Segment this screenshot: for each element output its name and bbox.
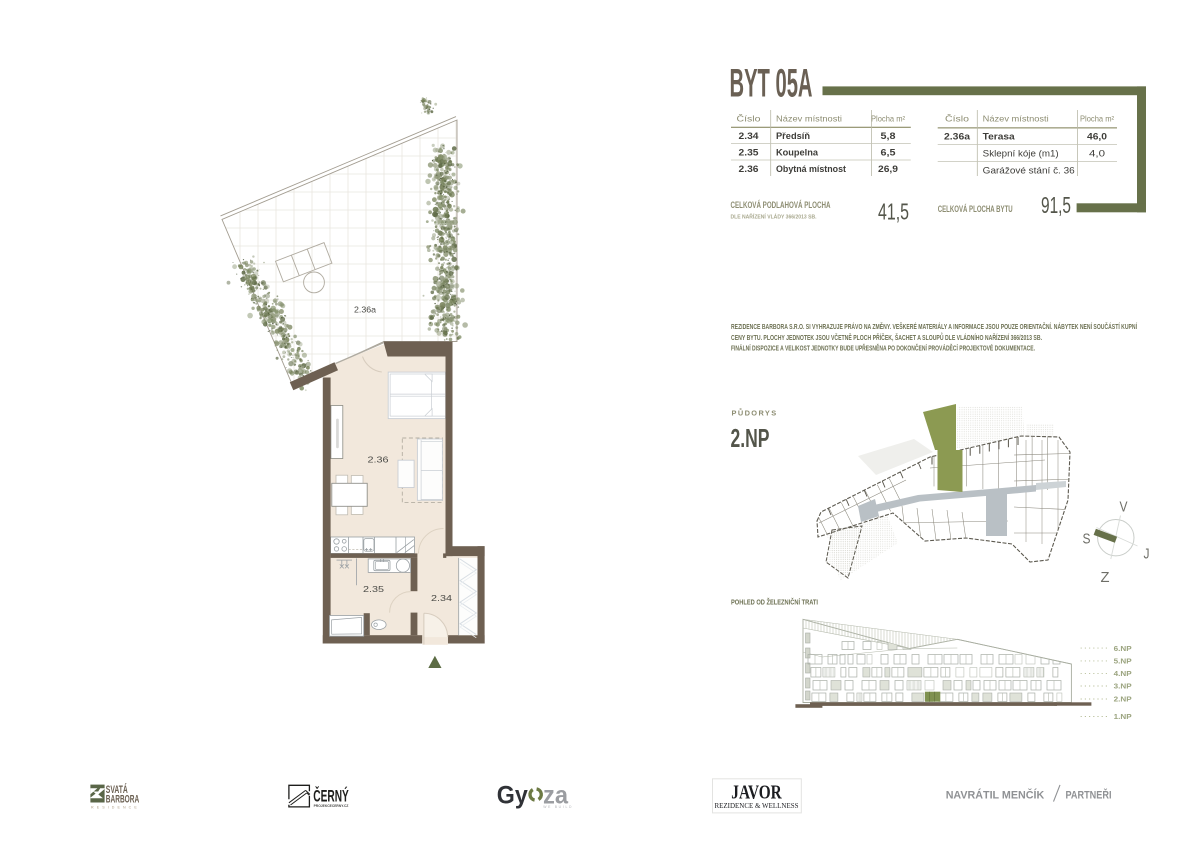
- svg-text:2.36: 2.36: [368, 455, 389, 465]
- svg-text:CELKOVÁ PODLAHOVÁ PLOCHA: CELKOVÁ PODLAHOVÁ PLOCHA: [731, 200, 831, 210]
- svg-text:5.NP: 5.NP: [1114, 657, 1132, 666]
- svg-text:3.NP: 3.NP: [1114, 682, 1132, 691]
- svg-text:RESIDENCE: RESIDENCE: [91, 805, 140, 809]
- svg-text:Plocha m²: Plocha m²: [1080, 114, 1114, 123]
- svg-text:Předsíň: Předsíň: [776, 131, 810, 141]
- svg-text:CENY BYTU. PLOCHY JEDNOTEK JSO: CENY BYTU. PLOCHY JEDNOTEK JSOU VČETNĚ P…: [731, 332, 1042, 342]
- svg-text:2.34: 2.34: [739, 131, 760, 141]
- svg-text:Číslo: Číslo: [945, 113, 970, 123]
- svg-text:2.35: 2.35: [363, 584, 384, 594]
- svg-text:Číslo: Číslo: [737, 113, 762, 123]
- svg-text:JAVOR: JAVOR: [731, 782, 782, 803]
- svg-text:2.36: 2.36: [739, 164, 759, 174]
- svg-text:6,5: 6,5: [881, 148, 896, 158]
- svg-text:2.NP: 2.NP: [1114, 695, 1132, 704]
- svg-text:WE BUILD: WE BUILD: [543, 805, 573, 809]
- svg-text:NAVRÁTIL MENČÍK: NAVRÁTIL MENČÍK: [946, 789, 1045, 802]
- svg-text:PROJEKCECERNY.CZ: PROJEKCECERNY.CZ: [314, 804, 349, 808]
- svg-text:2.NP: 2.NP: [731, 425, 770, 453]
- svg-text:Plocha m²: Plocha m²: [871, 114, 905, 123]
- svg-text:Z: Z: [1101, 570, 1110, 586]
- svg-text:Obytná místnost: Obytná místnost: [776, 164, 846, 174]
- svg-text:46,0: 46,0: [1087, 132, 1107, 142]
- svg-text:ČERNÝ: ČERNÝ: [313, 787, 349, 806]
- svg-text:41,5: 41,5: [878, 198, 909, 224]
- svg-text:PŮDORYS: PŮDORYS: [732, 408, 778, 418]
- svg-text:2.36a: 2.36a: [354, 306, 376, 315]
- svg-text:J: J: [1144, 546, 1150, 562]
- svg-text:DLE NAŘÍZENÍ VLÁDY 366/2013 SB: DLE NAŘÍZENÍ VLÁDY 366/2013 SB.: [731, 212, 817, 220]
- svg-text:BARBORA: BARBORA: [106, 794, 139, 806]
- svg-text:POHLED OD ŽELEZNIČNÍ TRATI: POHLED OD ŽELEZNIČNÍ TRATI: [731, 598, 818, 607]
- svg-text:REZIDENCE BARBORA S.R.O. SI VY: REZIDENCE BARBORA S.R.O. SI VYHRAZUJE PR…: [731, 322, 1138, 331]
- svg-text:6.NP: 6.NP: [1114, 644, 1132, 653]
- svg-text:Název místnosti: Název místnosti: [776, 114, 842, 123]
- svg-text:4,0: 4,0: [1089, 149, 1105, 159]
- svg-text:BYT 05A: BYT 05A: [730, 61, 813, 105]
- svg-text:4.NP: 4.NP: [1114, 669, 1132, 678]
- svg-text:V: V: [1120, 500, 1128, 516]
- svg-text:Sklepní kóje (m1): Sklepní kóje (m1): [983, 149, 1059, 159]
- svg-text:5,8: 5,8: [881, 131, 896, 141]
- svg-text:Gy: Gy: [497, 781, 528, 809]
- svg-text:S: S: [1083, 532, 1091, 548]
- svg-text:2.34: 2.34: [431, 593, 452, 603]
- svg-text:REZIDENCE & WELLNESS: REZIDENCE & WELLNESS: [715, 801, 799, 810]
- svg-text:Název místnosti: Název místnosti: [983, 114, 1049, 123]
- svg-text:Terasa: Terasa: [983, 132, 1016, 142]
- svg-text:CELKOVÁ PLOCHA BYTU: CELKOVÁ PLOCHA BYTU: [938, 204, 1013, 214]
- svg-text:2.36a: 2.36a: [944, 132, 971, 142]
- svg-text:PARTNEŘI: PARTNEŘI: [1066, 789, 1112, 802]
- svg-text:Garážové stání č. 36: Garážové stání č. 36: [983, 166, 1075, 176]
- svg-text:26,9: 26,9: [878, 164, 898, 174]
- svg-text:2.35: 2.35: [739, 148, 759, 158]
- svg-text:Koupelna: Koupelna: [776, 148, 819, 158]
- svg-text:FINÁLNÍ DISPOZICE A VELIKOST J: FINÁLNÍ DISPOZICE A VELIKOST JEDNOTKY BU…: [731, 344, 1035, 353]
- svg-text:1.NP: 1.NP: [1114, 712, 1132, 721]
- svg-text:91,5: 91,5: [1041, 192, 1071, 218]
